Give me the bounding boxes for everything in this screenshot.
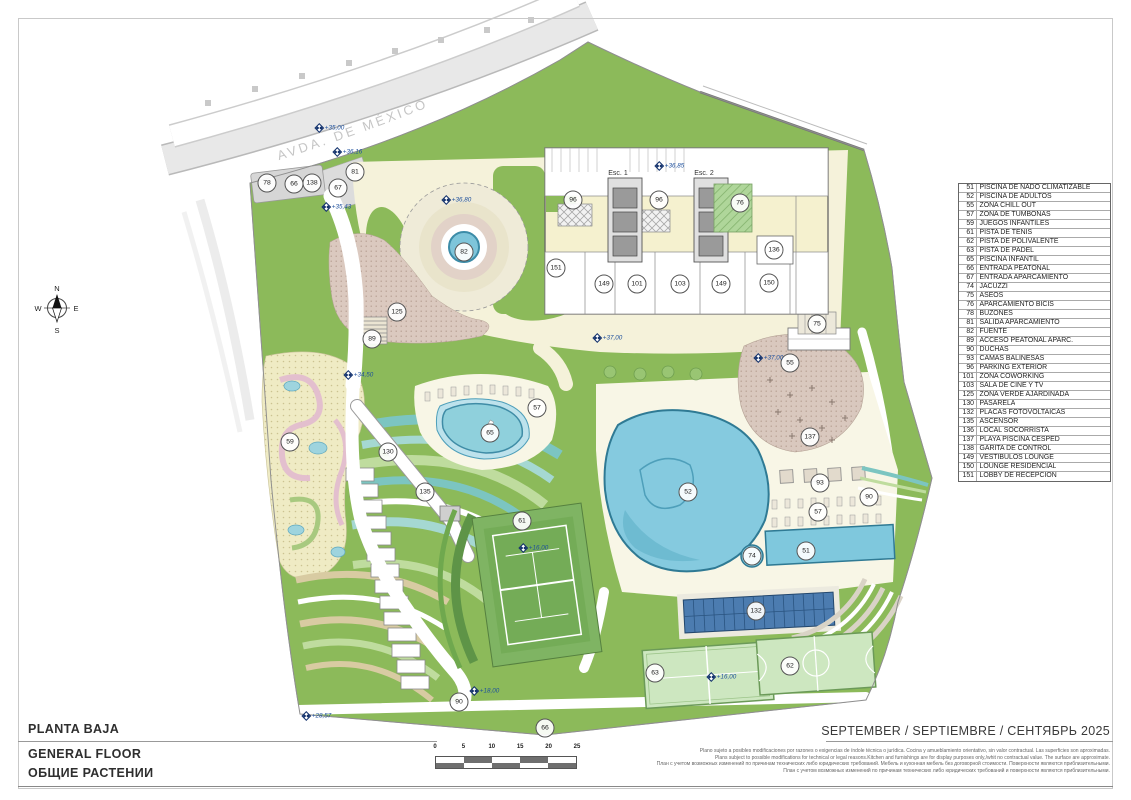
legend-item-number: 150 bbox=[959, 463, 977, 471]
legend-row: 74JACUZZI bbox=[959, 283, 1110, 292]
legend-item-label: PISTA DE POLIVALENTE bbox=[977, 238, 1059, 246]
bike-parking bbox=[714, 184, 752, 232]
jacuzzi bbox=[741, 545, 763, 567]
legend-item-number: 125 bbox=[959, 391, 977, 399]
legend-item-number: 81 bbox=[959, 319, 977, 327]
compass-n: N bbox=[54, 284, 59, 293]
legend-item-label: LOBBY DE RECEPCIÓN bbox=[977, 472, 1057, 481]
legend-row: 103SALA DE CINE Y TV bbox=[959, 382, 1110, 391]
scale-segment bbox=[464, 763, 492, 769]
legend-row: 138GARITA DE CONTROL bbox=[959, 445, 1110, 454]
legend-row: 55ZONA CHILL OUT bbox=[959, 202, 1110, 211]
legend-row: 81SALIDA APARCAMIENTO bbox=[959, 319, 1110, 328]
multisport-court bbox=[756, 632, 876, 695]
legend-row: 78BUZONES bbox=[959, 310, 1110, 319]
legend-row: 149VESTÍBULOS LOUNGE bbox=[959, 454, 1110, 463]
legend-item-number: 149 bbox=[959, 454, 977, 462]
fountain-pool bbox=[449, 232, 479, 262]
legend-item-label: ASEOS bbox=[977, 292, 1003, 300]
scale-tick: 5 bbox=[462, 744, 465, 750]
tennis-court bbox=[472, 503, 602, 667]
legend-item-number: 135 bbox=[959, 418, 977, 426]
legend-item-number: 55 bbox=[959, 202, 977, 210]
legend-item-number: 75 bbox=[959, 292, 977, 300]
legend-item-number: 62 bbox=[959, 238, 977, 246]
wc-steps bbox=[798, 312, 836, 334]
legend-item-number: 67 bbox=[959, 274, 977, 282]
legend-row: 51PISCINA DE NADO CLIMATIZABLE bbox=[959, 184, 1110, 193]
legend-item-number: 66 bbox=[959, 265, 977, 273]
legend-item-label: PISCINA DE ADULTOS bbox=[977, 193, 1052, 201]
legend-item-label: PISCINA DE NADO CLIMATIZABLE bbox=[977, 184, 1090, 192]
title-english: GENERAL FLOOR bbox=[28, 747, 141, 761]
lifeguard-room bbox=[757, 236, 793, 264]
disclaimer-ru2: План с учетом возможных изменений по при… bbox=[640, 768, 1110, 775]
scale-tick: 0 bbox=[433, 744, 436, 750]
legend-item-number: 89 bbox=[959, 337, 977, 345]
legend-item-number: 101 bbox=[959, 373, 977, 381]
legend-row: 137PLAYA PISCINA CESPED bbox=[959, 436, 1110, 445]
scale-ticks: 0510152025 bbox=[435, 744, 577, 754]
legend-item-label: VESTÍBULOS LOUNGE bbox=[977, 454, 1054, 462]
legend-body: 51PISCINA DE NADO CLIMATIZABLE52PISCINA … bbox=[959, 184, 1110, 481]
scale-tick: 20 bbox=[545, 744, 552, 750]
legend-item-label: JUEGOS INFANTILES bbox=[977, 220, 1049, 228]
legend-item-label: PISTA DE PADEL bbox=[977, 247, 1034, 255]
legend-item-label: PARKING EXTERIOR bbox=[977, 364, 1047, 372]
legend-row: 90DUCHAS bbox=[959, 346, 1110, 355]
legend-row: 130PASARELA bbox=[959, 400, 1110, 409]
scale-segment bbox=[548, 763, 576, 769]
legend-item-label: PLAYA PISCINA CESPED bbox=[977, 436, 1060, 444]
legend-row: 66ENTRADA PEATONAL bbox=[959, 265, 1110, 274]
scale-bar-segments bbox=[435, 756, 577, 769]
legend-item-label: PASARELA bbox=[977, 400, 1015, 408]
scale-bar: 0510152025 bbox=[430, 744, 590, 778]
legend-row: 59JUEGOS INFANTILES bbox=[959, 220, 1110, 229]
legend-item-number: 51 bbox=[959, 184, 977, 192]
legend-item-number: 76 bbox=[959, 301, 977, 309]
legend-item-number: 59 bbox=[959, 220, 977, 228]
legend-item-number: 93 bbox=[959, 355, 977, 363]
disclaimer-es: Plano sujeto a posibles modificaciones p… bbox=[640, 748, 1110, 755]
scale-segment bbox=[492, 763, 520, 769]
legend-row: 82FUENTE bbox=[959, 328, 1110, 337]
legend-item-label: LOUNGE RESIDENCIAL bbox=[977, 463, 1056, 471]
legend-row: 96PARKING EXTERIOR bbox=[959, 364, 1110, 373]
legend-item-label: ZONA CHILL OUT bbox=[977, 202, 1036, 210]
compass-s: S bbox=[54, 326, 59, 335]
titleblock-line-left bbox=[18, 741, 437, 742]
legend-row: 61PISTA DE TENIS bbox=[959, 229, 1110, 238]
legend-row: 75ASEOS bbox=[959, 292, 1110, 301]
legend-item-label: PISCINA INFANTIL bbox=[977, 256, 1039, 264]
stair-label-1: Esc. 1 bbox=[608, 170, 628, 177]
disclaimer: Plano sujeto a posibles modificaciones p… bbox=[640, 748, 1110, 774]
legend-row: 52PISCINA DE ADULTOS bbox=[959, 193, 1110, 202]
legend-item-label: FUENTE bbox=[977, 328, 1007, 336]
legend-row: 101ZONA COWORKING bbox=[959, 373, 1110, 382]
legend-item-number: 52 bbox=[959, 193, 977, 201]
legend-row: 151LOBBY DE RECEPCIÓN bbox=[959, 472, 1110, 481]
legend-row: 63PISTA DE PADEL bbox=[959, 247, 1110, 256]
compass-e: E bbox=[73, 304, 78, 313]
legend-item-number: 103 bbox=[959, 382, 977, 390]
scale-segment bbox=[520, 763, 548, 769]
legend-item-number: 96 bbox=[959, 364, 977, 372]
title-russian: ОБЩИЕ РАСТЕНИИ bbox=[28, 766, 153, 780]
legend-item-number: 151 bbox=[959, 472, 977, 481]
legend-row: 65PISCINA INFANTIL bbox=[959, 256, 1110, 265]
legend-item-label: ACCESO PEATONAL APARC. bbox=[977, 337, 1073, 345]
titleblock-line-bottom bbox=[18, 786, 1113, 787]
legend-item-number: 82 bbox=[959, 328, 977, 336]
scale-segment bbox=[436, 763, 464, 769]
legend-row: 57ZONA DE TUMBONAS bbox=[959, 211, 1110, 220]
legend-row: 89ACCESO PEATONAL APARC. bbox=[959, 337, 1110, 346]
legend-row: 76APARCAMIENTO BICIS bbox=[959, 301, 1110, 310]
disclaimer-ru1: План с учетом возможных изменений по при… bbox=[640, 761, 1110, 768]
legend-row: 67ENTRADA APARCAMIENTO bbox=[959, 274, 1110, 283]
legend-item-label: ENTRADA APARCAMIENTO bbox=[977, 274, 1068, 282]
legend: 51PISCINA DE NADO CLIMATIZABLE52PISCINA … bbox=[958, 183, 1111, 482]
legend-item-label: ASCENSOR bbox=[977, 418, 1018, 426]
legend-item-number: 74 bbox=[959, 283, 977, 291]
date-line: SEPTEMBER / SEPTIEMBRE / СЕНТЯБРЬ 2025 bbox=[700, 724, 1110, 738]
legend-row: 93CAMAS BALINESAS bbox=[959, 355, 1110, 364]
legend-item-label: APARCAMIENTO BICIS bbox=[977, 301, 1054, 309]
legend-item-label: GARITA DE CONTROL bbox=[977, 445, 1051, 453]
legend-item-label: SALIDA APARCAMIENTO bbox=[977, 319, 1060, 327]
adults-pool bbox=[605, 410, 769, 571]
compass: N S W E bbox=[34, 284, 78, 335]
legend-row: 150LOUNGE RESIDENCIAL bbox=[959, 463, 1110, 472]
legend-item-number: 136 bbox=[959, 427, 977, 435]
legend-item-number: 90 bbox=[959, 346, 977, 354]
scale-tick: 25 bbox=[574, 744, 581, 750]
legend-item-label: DUCHAS bbox=[977, 346, 1009, 354]
legend-item-label: ENTRADA PEATONAL bbox=[977, 265, 1050, 273]
legend-item-number: 65 bbox=[959, 256, 977, 264]
legend-item-label: CAMAS BALINESAS bbox=[977, 355, 1044, 363]
main-building: Esc. 1 Esc. 2 bbox=[545, 148, 828, 314]
legend-item-number: 132 bbox=[959, 409, 977, 417]
legend-item-label: JACUZZI bbox=[977, 283, 1008, 291]
scale-tick: 10 bbox=[488, 744, 495, 750]
legend-item-label: BUZONES bbox=[977, 310, 1013, 318]
legend-item-number: 137 bbox=[959, 436, 977, 444]
title-spanish: PLANTA BAJA bbox=[28, 722, 119, 736]
legend-item-label: PISTA DE TENIS bbox=[977, 229, 1032, 237]
stair-core-1 bbox=[608, 178, 642, 262]
titleblock-line-right bbox=[826, 741, 1113, 742]
legend-row: 132PLACAS FOTOVOLTAICAS bbox=[959, 409, 1110, 418]
legend-row: 62PISTA DE POLIVALENTE bbox=[959, 238, 1110, 247]
legend-item-number: 61 bbox=[959, 229, 977, 237]
legend-item-label: ZONA COWORKING bbox=[977, 373, 1044, 381]
legend-item-label: PLACAS FOTOVOLTAICAS bbox=[977, 409, 1065, 417]
stair-label-2: Esc. 2 bbox=[694, 170, 714, 177]
legend-item-number: 130 bbox=[959, 400, 977, 408]
legend-item-number: 63 bbox=[959, 247, 977, 255]
legend-item-number: 57 bbox=[959, 211, 977, 219]
legend-row: 125ZONA VERDE AJARDINADA bbox=[959, 391, 1110, 400]
legend-item-label: LOCAL SOCORRISTA bbox=[977, 427, 1049, 435]
legend-item-label: ZONA DE TUMBONAS bbox=[977, 211, 1051, 219]
padel-court bbox=[642, 642, 774, 709]
legend-row: 135ASCENSOR bbox=[959, 418, 1110, 427]
scale-tick: 15 bbox=[517, 744, 524, 750]
outside-terrain bbox=[184, 200, 250, 432]
legend-item-number: 138 bbox=[959, 445, 977, 453]
legend-item-number: 78 bbox=[959, 310, 977, 318]
legend-item-label: ZONA VERDE AJARDINADA bbox=[977, 391, 1069, 399]
legend-row: 136LOCAL SOCORRISTA bbox=[959, 427, 1110, 436]
lap-pool bbox=[765, 525, 895, 566]
legend-item-label: SALA DE CINE Y TV bbox=[977, 382, 1043, 390]
compass-w: W bbox=[34, 304, 42, 313]
